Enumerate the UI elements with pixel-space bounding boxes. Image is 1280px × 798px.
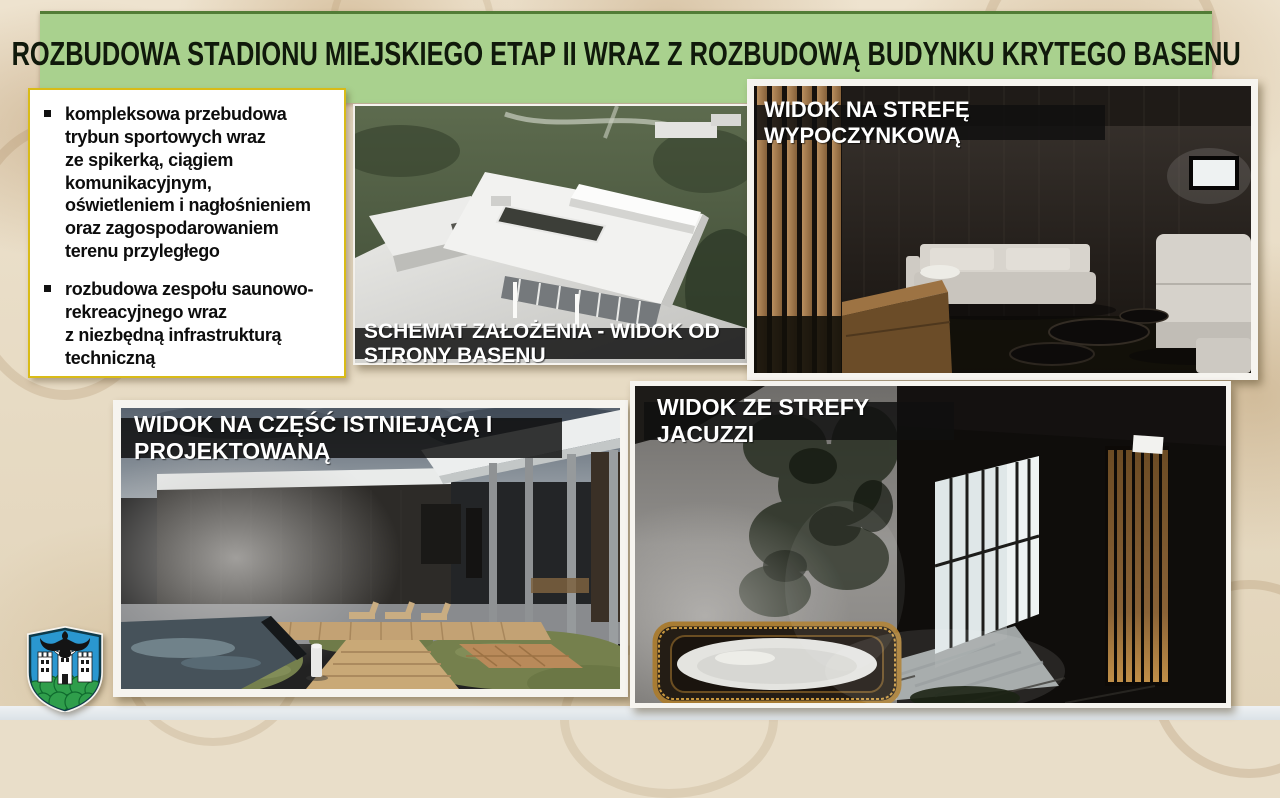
- caption-text: WIDOK NA STREFĘ WYPOCZYNKOWĄ: [764, 97, 1105, 149]
- bullet-text: kompleksowa przebudowa trybun sportowych…: [65, 103, 311, 263]
- caption-bar: WIDOK NA CZĘŚĆ ISTNIEJĄCĄ I PROJEKTOWANĄ: [121, 418, 562, 458]
- caption-text: WIDOK ZE STREFY JACUZZI: [657, 394, 954, 448]
- render-strefa-wypoczynkowa: WIDOK NA STREFĘ WYPOCZYNKOWĄ: [747, 79, 1258, 380]
- bullet-square-icon: [44, 110, 51, 117]
- caption-text: SCHEMAT ZAŁOŻENIA - WIDOK OD STRONY BASE…: [364, 320, 745, 368]
- caption-bar: WIDOK NA STREFĘ WYPOCZYNKOWĄ: [754, 105, 1105, 140]
- page-title: ROZBUDOWA STADIONU MIEJSKIEGO ETAP II WR…: [11, 35, 1240, 73]
- bullet-text: rozbudowa zespołu saunowo- rekreacyjnego…: [65, 278, 313, 369]
- city-coat-of-arms-icon: [26, 626, 104, 712]
- project-scope-textbox: kompleksowa przebudowa trybun sportowych…: [28, 88, 346, 378]
- caption-text: WIDOK NA CZĘŚĆ ISTNIEJĄCĄ I PROJEKTOWANĄ: [134, 411, 562, 465]
- render-schemat-zalozenia: SCHEMAT ZAŁOŻENIA - WIDOK OD STRONY BASE…: [353, 104, 755, 365]
- bullet-square-icon: [44, 285, 51, 292]
- bullet-item: rozbudowa zespołu saunowo- rekreacyjnego…: [42, 278, 336, 369]
- caption-bar: SCHEMAT ZAŁOŻENIA - WIDOK OD STRONY BASE…: [355, 328, 745, 359]
- render-czesc-istniejaca: WIDOK NA CZĘŚĆ ISTNIEJĄCĄ I PROJEKTOWANĄ: [113, 400, 628, 697]
- caption-bar: WIDOK ZE STREFY JACUZZI: [644, 402, 954, 440]
- bottom-strip: [0, 706, 1280, 720]
- render-strefa-jacuzzi: WIDOK ZE STREFY JACUZZI: [630, 381, 1231, 708]
- wooden-door: [1105, 435, 1169, 686]
- bullet-item: kompleksowa przebudowa trybun sportowych…: [42, 103, 336, 263]
